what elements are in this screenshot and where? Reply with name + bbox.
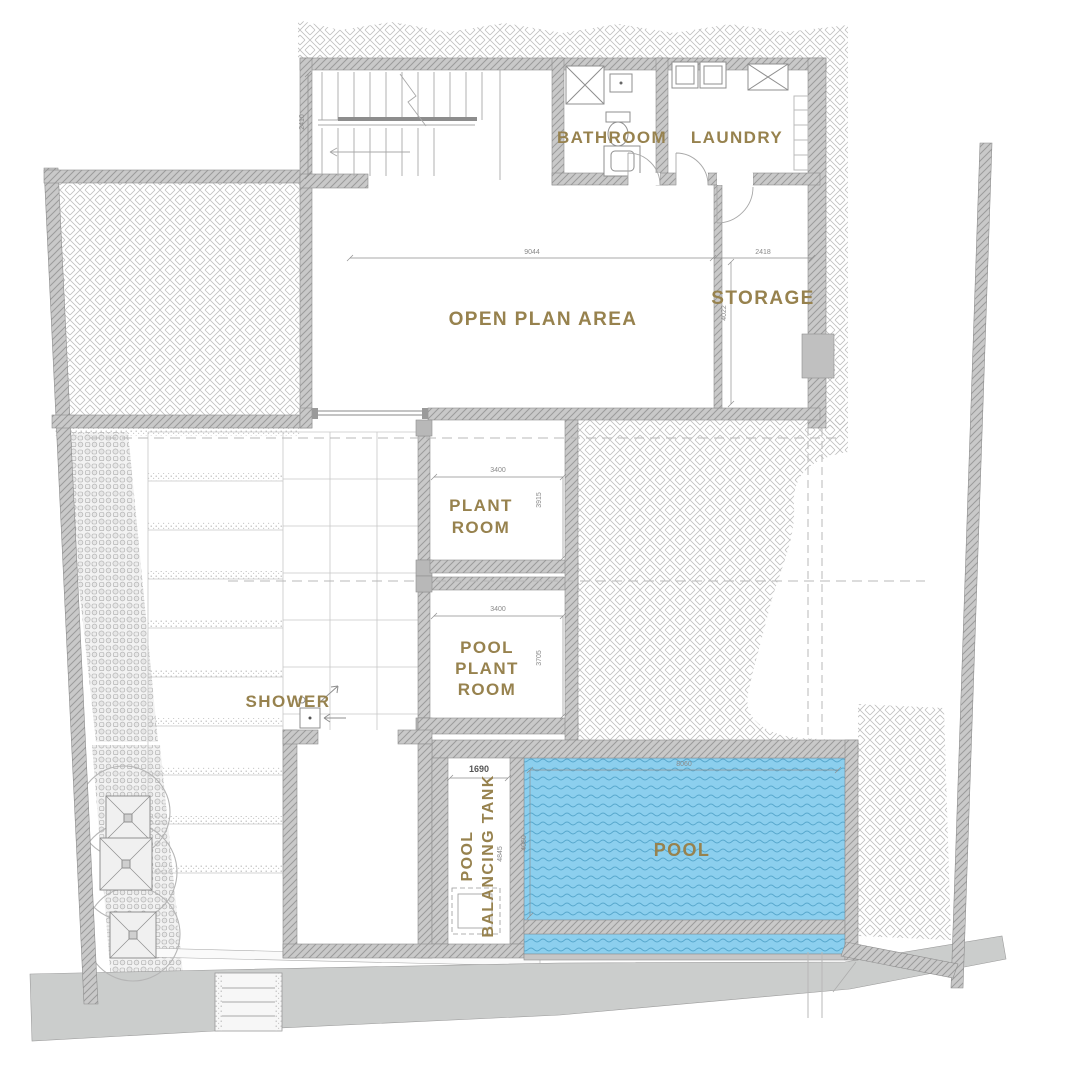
plant-room-floor <box>430 420 565 560</box>
dim-open-plan-width: 9044 <box>524 249 540 256</box>
dim-plant-room-depth: 3915 <box>536 492 543 508</box>
dim-pool-depth: 4060 <box>521 835 528 851</box>
dim-plant-room-width: 3400 <box>490 467 506 474</box>
earth-left-court <box>58 183 300 415</box>
earth-pool-right <box>858 704 951 940</box>
storage-pier <box>802 334 834 378</box>
floor-plan-canvas: 9044 2418 4022 2410 3400 3915 3400 3705 … <box>0 0 1080 1080</box>
pool-plant-label-line1: POOL <box>460 638 514 657</box>
lower-terrace-room-floor <box>297 744 418 944</box>
south-wall <box>428 408 820 420</box>
dim-stair-depth: 2410 <box>299 114 306 130</box>
plant-room-label-line2: ROOM <box>452 518 510 537</box>
dim-storage-width: 2418 <box>755 249 771 256</box>
pool-plant-label-line3: ROOM <box>458 680 516 699</box>
overflow-wave-texture <box>524 934 845 954</box>
toilet-tank <box>606 112 630 122</box>
floor-plan-svg: 9044 2418 4022 2410 3400 3915 3400 3705 … <box>0 0 1080 1080</box>
pool-plant-label-line2: PLANT <box>455 659 519 678</box>
pool-north-wall <box>432 740 858 758</box>
dim-pool-width: 8060 <box>676 761 692 768</box>
balancing-tank-label-line2: BALANCING TANK <box>480 774 497 937</box>
exterior-steps <box>215 973 282 1031</box>
shower-label: SHOWER <box>246 692 331 711</box>
laundry-label: LAUNDRY <box>691 128 783 147</box>
west-wall <box>300 58 312 428</box>
stair-handrail <box>338 117 477 121</box>
dim-tank-width: 1690 <box>469 764 489 774</box>
dim-tank-depth: 4845 <box>497 846 504 862</box>
dim-pool-plant-depth: 3705 <box>536 650 543 666</box>
gravel-strip <box>55 428 300 436</box>
basin-bowl <box>611 151 634 171</box>
pool-edge-wall <box>524 920 845 934</box>
plant-room-label-line1: PLANT <box>449 496 513 515</box>
balancing-tank-label-line1: POOL <box>459 831 476 882</box>
pool-wave-texture <box>524 758 845 920</box>
pool-label: POOL <box>654 840 711 860</box>
stairwell-floor <box>312 70 552 174</box>
pool-east-wall <box>845 740 858 960</box>
bathroom-label: BATHROOM <box>557 128 667 147</box>
open-plan-label: OPEN PLAN AREA <box>449 309 638 330</box>
dim-pool-plant-width: 3400 <box>490 606 506 613</box>
open-plan-floor <box>312 185 714 408</box>
storage-label: STORAGE <box>711 288 814 309</box>
